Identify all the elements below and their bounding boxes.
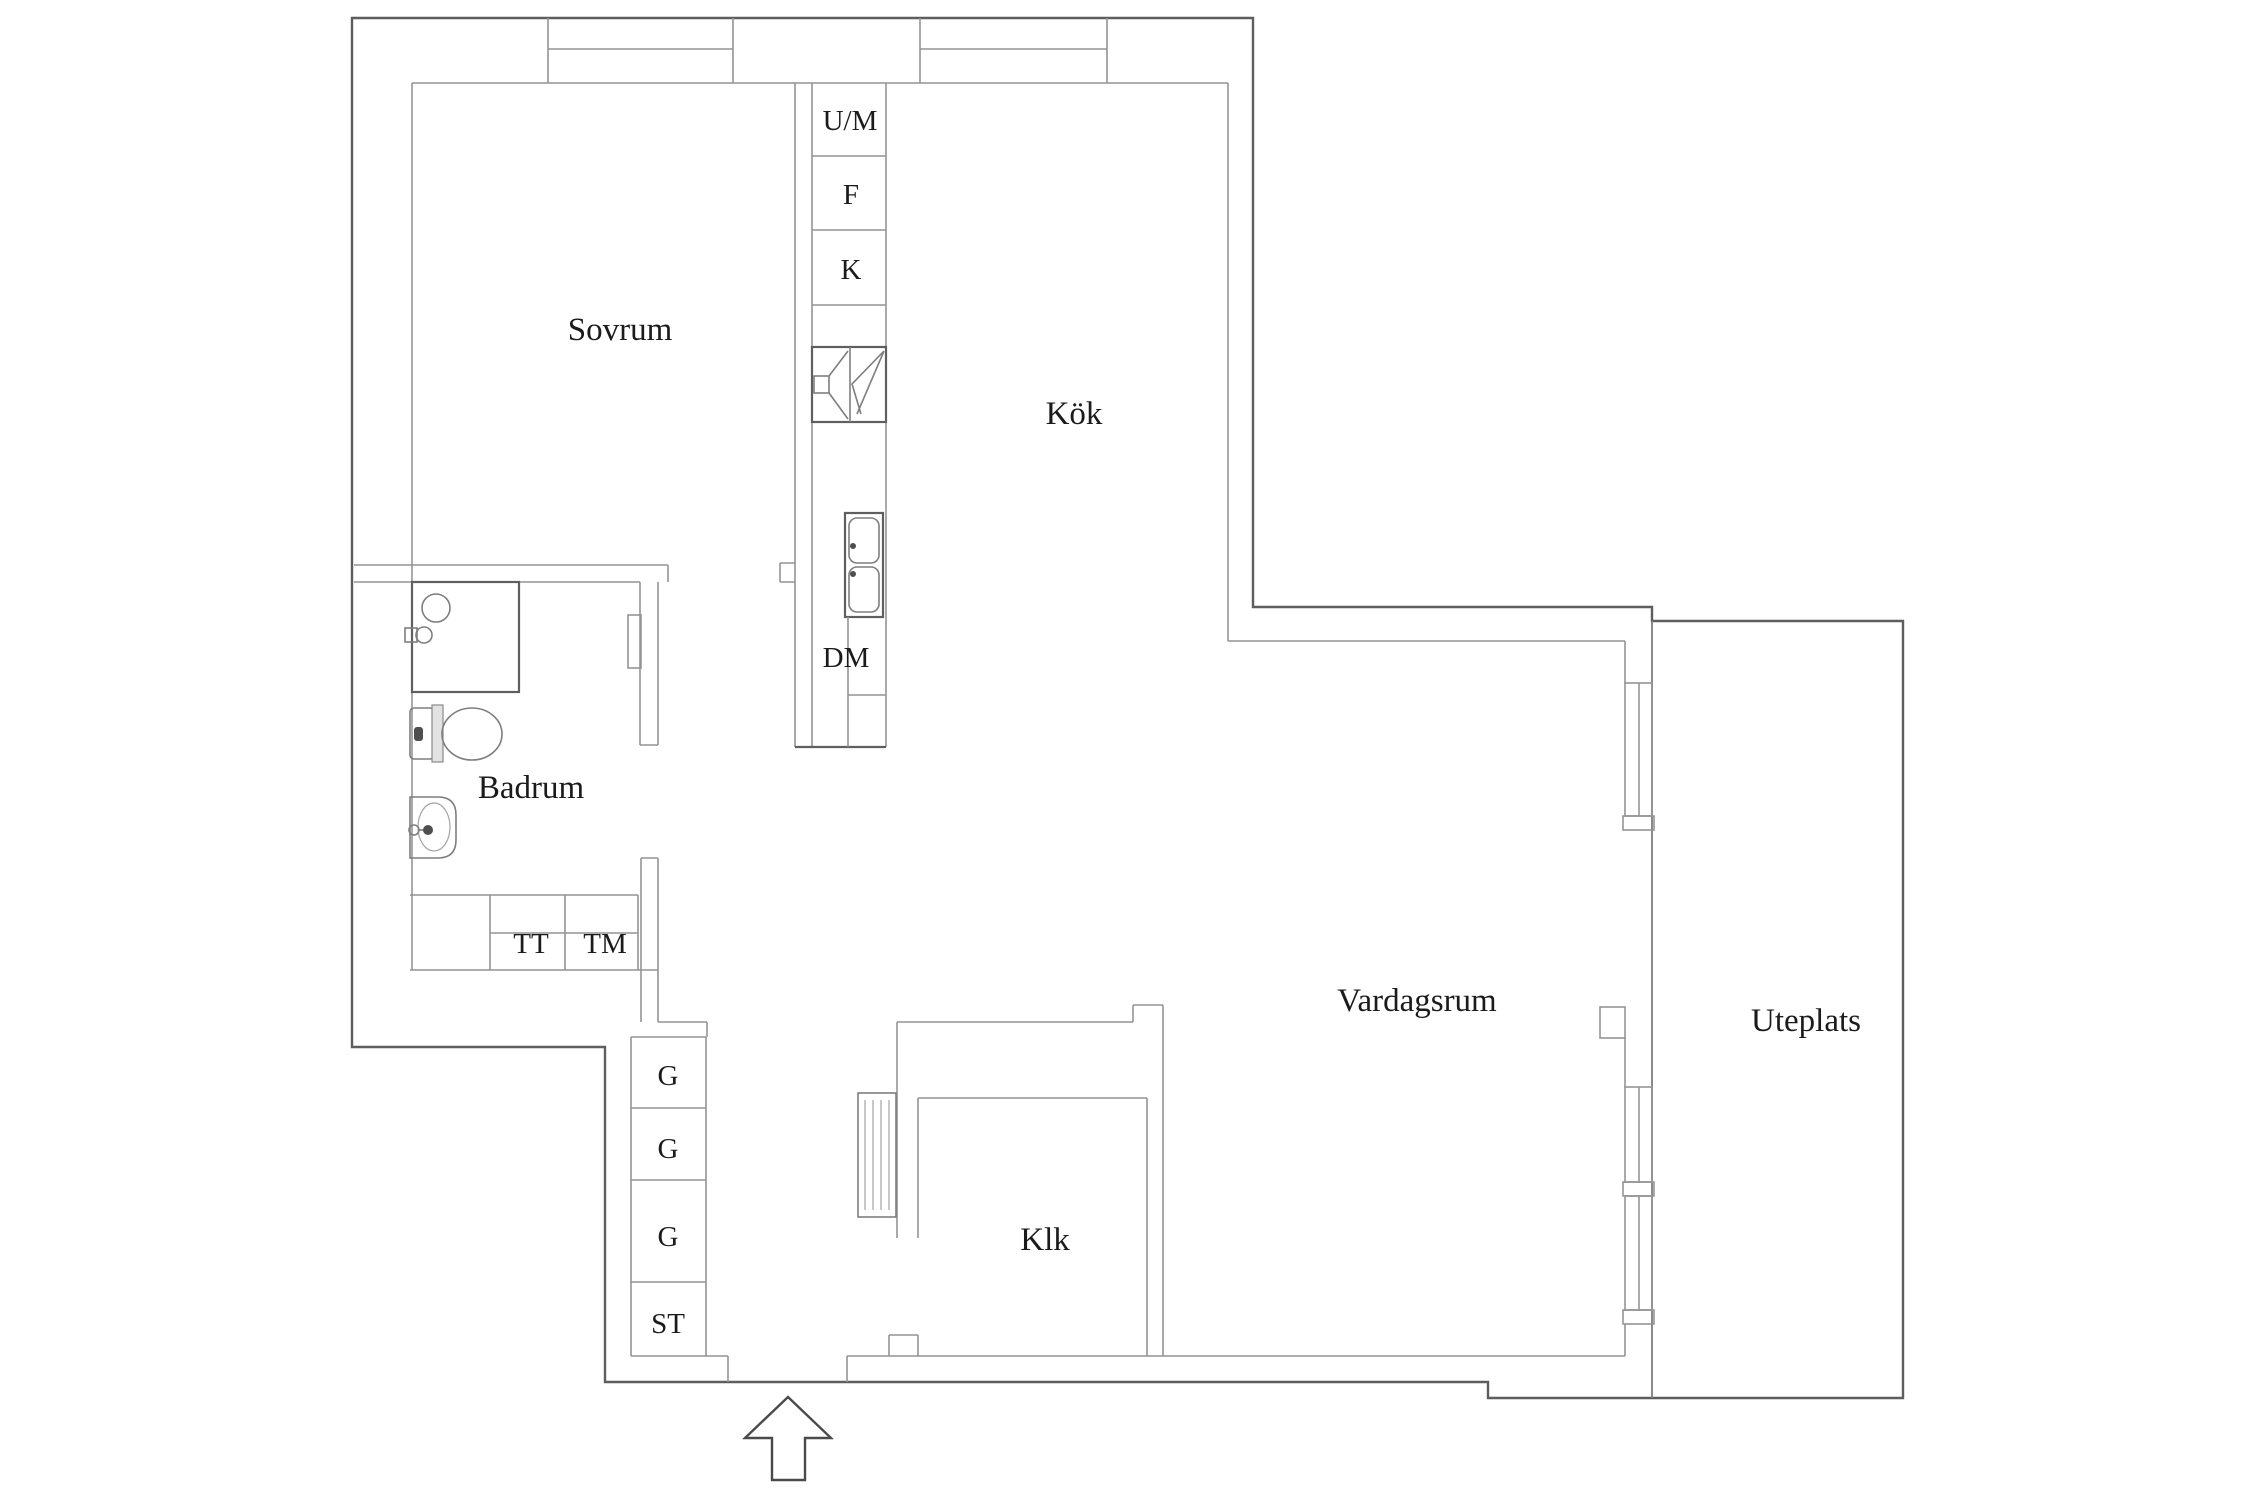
appliance-label-tm: TM [583, 928, 627, 960]
washbasin-icon [409, 797, 456, 858]
toilet-icon [410, 705, 502, 762]
room-label-uteplats: Uteplats [1751, 1003, 1861, 1039]
window-wall [1600, 641, 1654, 1356]
room-label-vardagsrum: Vardagsrum [1337, 983, 1497, 1019]
appliance-label-um: U/M [823, 105, 878, 137]
room-label-kok: Kök [1046, 396, 1103, 432]
entrance-arrow-icon [745, 1397, 831, 1480]
klk-closet [858, 1005, 1163, 1356]
top-window-niche-right [920, 18, 1107, 83]
closet-label-st: ST [651, 1308, 685, 1340]
appliance-labels: U/M F K DM TT TM G G G ST [513, 105, 877, 1340]
outer-walls [352, 18, 1903, 1398]
room-label-sovrum: Sovrum [568, 312, 673, 348]
room-label-klk: Klk [1020, 1222, 1070, 1258]
appliance-label-tt: TT [513, 928, 549, 960]
appliance-label-k: K [841, 254, 862, 286]
closet-label-g1: G [658, 1060, 679, 1092]
bathroom-door-leaf [628, 615, 641, 668]
shower-icon [405, 582, 519, 692]
sink-icon [845, 513, 883, 617]
closet-label-g3: G [658, 1221, 679, 1253]
radiator-icon [858, 1093, 896, 1217]
wall-pier [1600, 1007, 1625, 1038]
appliance-label-dm: DM [823, 642, 870, 674]
window-lower [1623, 1087, 1654, 1324]
room-label-badrum: Badrum [478, 770, 585, 806]
appliance-label-f: F [843, 179, 859, 211]
window-upper [1623, 683, 1654, 830]
floorplan-drawing: Sovrum Kök Badrum Vardagsrum Uteplats Kl… [0, 0, 2250, 1500]
floorplan-page: Sovrum Kök Badrum Vardagsrum Uteplats Kl… [0, 0, 2250, 1500]
closet-label-g2: G [658, 1133, 679, 1165]
stove-icon [812, 347, 886, 422]
inner-walls [354, 18, 1625, 1382]
room-labels: Sovrum Kök Badrum Vardagsrum Uteplats Kl… [478, 312, 1861, 1258]
top-window-niche-left [548, 18, 733, 83]
